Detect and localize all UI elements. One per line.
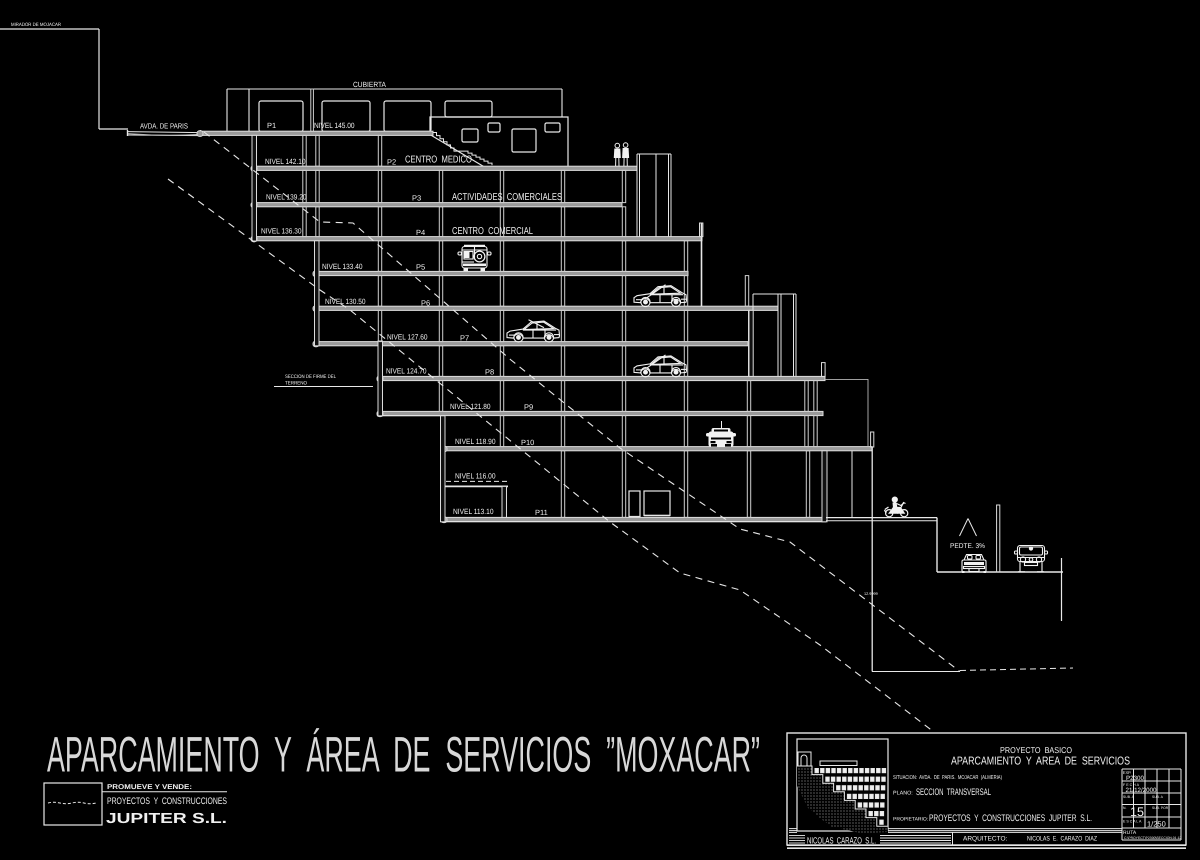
svg-text:NIVEL 139.20: NIVEL 139.20 (266, 193, 307, 202)
svg-text:15: 15 (1130, 805, 1144, 819)
svg-text:E S C A L A: E S C A L A (1123, 820, 1142, 824)
svg-text:P9: P9 (524, 403, 533, 412)
svg-text:SUB. POR: SUB. POR (1152, 806, 1169, 810)
svg-text:P5: P5 (416, 263, 425, 272)
svg-text:P1: P1 (267, 121, 276, 130)
svg-text:PLANO:: PLANO: (893, 791, 913, 797)
svg-text:P10: P10 (521, 438, 534, 447)
svg-text:NIVEL 133.40: NIVEL 133.40 (322, 262, 363, 271)
svg-text:P6: P6 (421, 299, 430, 308)
svg-text:P8: P8 (485, 368, 494, 377)
svg-text:PROYECTOS Y CONSTRUCCIONES: PROYECTOS Y CONSTRUCCIONES (107, 796, 227, 807)
svg-text:C:\PROYECT\P2300\SECCION.01.12: C:\PROYECT\P2300\SECCION.01.12 (1124, 836, 1181, 840)
svg-text:NIVEL 127.60: NIVEL 127.60 (387, 333, 428, 342)
svg-text:APARCAMIENTO Y AREA DE SER: APARCAMIENTO Y AREA DE SERVICIOS (951, 756, 1130, 768)
svg-text:NICOLAS E. CARAZO DIAZ: NICOLAS E. CARAZO DIAZ (1027, 836, 1097, 843)
svg-text:JUPITER S.L.: JUPITER S.L. (106, 811, 227, 827)
svg-text:TERRENO: TERRENO (285, 381, 307, 387)
svg-text:P2: P2 (387, 158, 396, 167)
svg-text:PROPIETARIO:: PROPIETARIO: (893, 817, 928, 823)
svg-text:SECCION TRANSVERSAL: SECCION TRANSVERSAL (916, 787, 991, 798)
svg-text:CENTRO MEDICO: CENTRO MEDICO (405, 155, 472, 166)
svg-text:1/250: 1/250 (1147, 820, 1166, 829)
svg-text:P11: P11 (535, 508, 548, 517)
svg-text:NIVEL 136.30: NIVEL 136.30 (261, 227, 302, 236)
svg-text:PROYECTO BASICO: PROYECTO BASICO (1000, 745, 1072, 755)
svg-text:N.: N. (1123, 806, 1126, 810)
svg-text:NIVEL 121.80: NIVEL 121.80 (450, 402, 491, 411)
svg-text:CENTRO COMERCIAL: CENTRO COMERCIAL (452, 226, 533, 237)
svg-text:P2300: P2300 (1126, 775, 1144, 782)
svg-text:CUBIERTA: CUBIERTA (353, 80, 386, 89)
svg-text:12.9999: 12.9999 (864, 592, 878, 596)
svg-text:21/12/2000: 21/12/2000 (1126, 787, 1158, 794)
svg-text:AVDA. DE PARIS: AVDA. DE PARIS (140, 122, 188, 131)
svg-text:ARQUITECTO:: ARQUITECTO: (963, 836, 1007, 843)
svg-text:P4: P4 (416, 228, 425, 237)
svg-text:APARCAMIENTO Y ÁREA DE SER: APARCAMIENTO Y ÁREA DE SERVICIOS ”MOXACA… (47, 727, 760, 783)
svg-text:PROYECTOS Y CONSTRUCCIONES: PROYECTOS Y CONSTRUCCIONES JUPITER S.L. (929, 813, 1092, 824)
svg-text:PROMUEVE Y VENDE:: PROMUEVE Y VENDE: (107, 784, 192, 791)
svg-text:PEDTE. 3%: PEDTE. 3% (950, 543, 985, 550)
svg-text:MIRADOR DE MOJACAR: MIRADOR DE MOJACAR (11, 22, 61, 28)
svg-text:NIVEL 116.00: NIVEL 116.00 (455, 472, 496, 481)
svg-text:NIVEL 118.90: NIVEL 118.90 (455, 437, 496, 446)
svg-text:ACTIVIDADES COMERCIALES: ACTIVIDADES COMERCIALES (452, 192, 562, 203)
svg-text:P7: P7 (460, 334, 469, 343)
svg-text:NIVEL 113.10: NIVEL 113.10 (453, 507, 494, 516)
svg-text:NIVEL 142.10: NIVEL 142.10 (265, 157, 306, 166)
svg-text:NIVEL 124.70: NIVEL 124.70 (386, 367, 427, 376)
svg-text:SUB. A: SUB. A (1152, 795, 1164, 799)
svg-text:P3: P3 (412, 194, 421, 203)
svg-text:NIVEL 145.00: NIVEL 145.00 (314, 121, 355, 130)
svg-text:SECCION DE FIRME DEL: SECCION DE FIRME DEL (285, 374, 336, 380)
svg-text:SUB. A: SUB. A (1123, 795, 1135, 799)
svg-text:NIVEL 130.50: NIVEL 130.50 (325, 297, 366, 306)
svg-text:NICOLAS CARAZO S.L.: NICOLAS CARAZO S.L. (807, 836, 876, 846)
svg-text:SITUACION: AVDA. DE PARIS.: SITUACION: AVDA. DE PARIS. MOJACAR (ALME… (893, 774, 1002, 781)
